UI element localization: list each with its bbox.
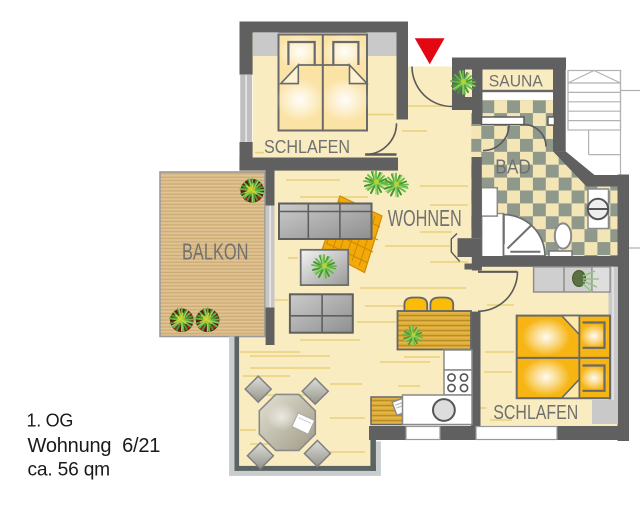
svg-text:BAD: BAD bbox=[495, 157, 531, 179]
svg-text:WOHNEN: WOHNEN bbox=[388, 205, 462, 231]
svg-text:Wohnung 6/21: Wohnung 6/21 bbox=[28, 435, 161, 457]
svg-text:SCHLAFEN: SCHLAFEN bbox=[264, 137, 350, 157]
svg-text:SAUNA: SAUNA bbox=[489, 72, 544, 91]
svg-text:ca. 56 qm: ca. 56 qm bbox=[28, 460, 110, 481]
svg-text:SCHLAFEN: SCHLAFEN bbox=[493, 401, 578, 424]
svg-text:BALKON: BALKON bbox=[182, 239, 249, 265]
svg-text:1. OG: 1. OG bbox=[27, 411, 74, 431]
